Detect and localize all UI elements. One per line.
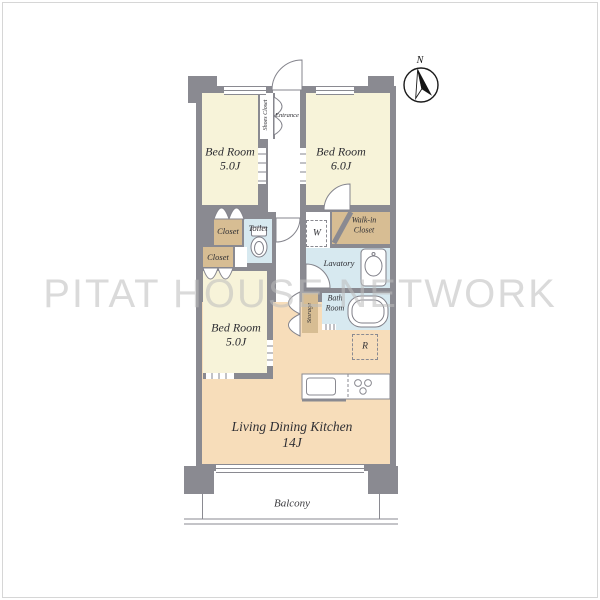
label-closet-upper: Closet [217,226,239,236]
floorplan-image: Bed Room 5.0J Bed Room 6.0J Bed Room 5.0… [0,0,600,600]
label-walk-in-closet: Walk-in Closet [342,215,386,234]
label-storage: Storage [307,303,314,323]
label-living-dining-kitchen: Living Dining Kitchen 14J [232,419,353,451]
compass-icon [404,68,438,102]
label-toilet: Toilet [248,223,267,233]
label-north: N [417,55,424,67]
label-entrance: Entrance [275,112,299,120]
room-size: 5.0J [205,159,255,173]
label-bedroom-top-right: Bed Room 6.0J [316,145,366,174]
label-washer: W [313,228,321,239]
label-bedroom-bottom: Bed Room 5.0J [211,321,261,350]
label-lavatory: Lavatory [324,258,355,268]
label-balcony: Balcony [274,497,310,510]
label-shoes-closet: Shoes Closet [263,100,269,131]
room-name: Bed Room [205,145,255,159]
label-bath-room: Bath Room [320,293,350,312]
room-size: 6.0J [316,159,366,173]
label-refrigerator: R [362,341,368,352]
room-name: Living Dining Kitchen [232,419,353,435]
label-bedroom-top-left: Bed Room 5.0J [205,145,255,174]
room-name: Bed Room [316,145,366,159]
room-size: 14J [232,435,353,451]
room-name: Bed Room [211,321,261,335]
label-closet-lower: Closet [207,252,229,262]
room-size: 5.0J [211,335,261,349]
